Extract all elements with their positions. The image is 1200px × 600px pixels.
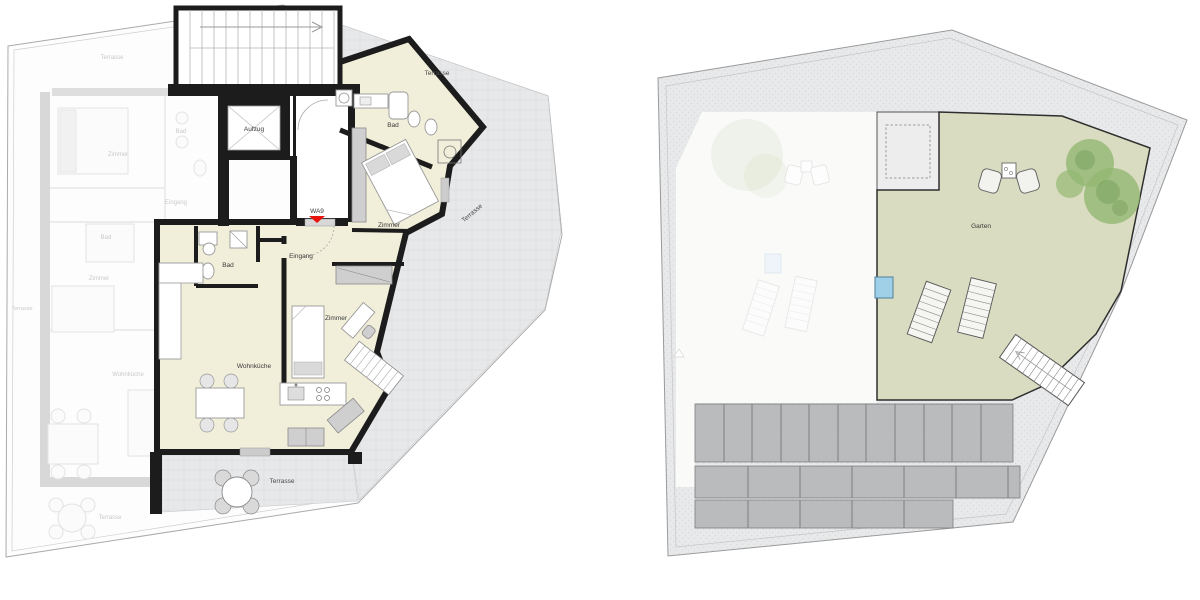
ghost-sink-icon (176, 112, 188, 124)
ghost-pool-icon (765, 254, 781, 273)
ghost-wc-icon (194, 160, 206, 176)
ghost-sink-icon (176, 136, 188, 148)
pillow (294, 362, 322, 375)
tree-icon (1056, 170, 1084, 198)
ghost-terrace-bottom-label: Terrasse (98, 515, 122, 521)
room-label-zimmer-top: Zimmer (378, 222, 401, 229)
tree-shade (1112, 200, 1128, 216)
elevator-label: Aufzug (244, 126, 265, 133)
chair-icon (200, 374, 214, 388)
ghost-chair-icon (81, 498, 95, 512)
ghost-pillow (60, 110, 76, 172)
terrace-wall-stub (348, 452, 362, 464)
ghost-bath (86, 224, 134, 262)
ghost-terrace-top-label: Terrasse (100, 55, 124, 61)
ghost-terrace-left-label: Terrasse (11, 306, 32, 312)
roof-garden-plan: Garten (658, 30, 1187, 556)
terrace-bottom-label: Terrasse (270, 478, 295, 485)
unit-label: WA9 (310, 208, 324, 215)
terrace-door-sill (441, 178, 449, 202)
wc-icon (408, 111, 420, 127)
terrace-top-label: Terrasse (425, 70, 450, 77)
stairwell (176, 8, 340, 88)
tree-shade (1075, 150, 1095, 170)
ghost-bed-icon (52, 286, 114, 332)
wardrobe-icon (352, 128, 366, 222)
elevator: Aufzug (218, 96, 290, 160)
bathtub-icon (389, 92, 408, 119)
ghost-chair-icon (77, 465, 91, 479)
room-label-eingang: Eingang (289, 253, 313, 260)
corridor: WA9 (290, 96, 355, 226)
terrace-seating (215, 470, 259, 514)
chair-icon (200, 418, 214, 432)
pool-icon (875, 277, 893, 298)
chair-icon (224, 418, 238, 432)
ghost-room-label: Bad (176, 129, 187, 135)
corridor-wall (290, 156, 297, 222)
ghost-chair-icon (77, 409, 91, 423)
sofa-icon (159, 263, 203, 283)
room-label-zimmer-small: Zimmer (325, 315, 348, 322)
ghost-chair-icon (81, 525, 95, 539)
floorplan-canvas: Terrasse Zimmer Bad Eingang Bad Zimmer T… (0, 0, 1200, 600)
ghost-tree-icon (744, 154, 788, 198)
terrace-wall-stub (150, 452, 162, 514)
sink-icon (203, 243, 215, 255)
ghost-room-label: Wohnküche (112, 372, 144, 378)
wc-icon (202, 263, 214, 279)
faucet (295, 384, 298, 387)
ghost-chair-icon (51, 465, 65, 479)
chair-icon (224, 374, 238, 388)
bidet-icon (425, 119, 437, 135)
ghost-dining-table-icon (48, 424, 98, 464)
basin (360, 97, 371, 105)
room-label-bad-small: Bad (222, 262, 234, 269)
corridor-floor (296, 96, 348, 222)
drawing-sheet: Terrasse Zimmer Bad Eingang Bad Zimmer T… (0, 0, 1200, 600)
solar-panels-row-3 (695, 500, 953, 528)
roof-access (877, 112, 939, 190)
side-table-icon (1002, 163, 1016, 178)
ghost-wall (52, 88, 172, 96)
tree-shade (1096, 180, 1120, 204)
apartment-floor-plan: Terrasse Zimmer Bad Eingang Bad Zimmer T… (6, 5, 562, 557)
ghost-chair-icon (51, 409, 65, 423)
core-wall (168, 84, 360, 96)
ghost-room-label: Eingang (165, 200, 187, 206)
kitchen-sink-icon (288, 387, 304, 400)
garden-label: Garten (971, 223, 991, 230)
ghost-room-label: Zimmer (89, 276, 109, 282)
washer-icon (336, 90, 352, 106)
round-table-icon (222, 477, 252, 507)
room-label-wohnkueche: Wohnküche (237, 363, 272, 370)
solar-panels-row-2 (695, 466, 1020, 498)
sofa-icon (159, 283, 181, 359)
terrace-door-sill (240, 448, 270, 456)
dining-table-icon (196, 388, 244, 418)
room-label-bad-top: Bad (387, 122, 399, 129)
ghost-room-label: Zimmer (108, 152, 128, 158)
ghost-room-label: Bad (101, 235, 112, 241)
ghost-chair-icon (49, 525, 63, 539)
solar-panels-row-1 (695, 404, 1013, 462)
ghost-chair-icon (49, 498, 63, 512)
core-wall (218, 156, 229, 226)
